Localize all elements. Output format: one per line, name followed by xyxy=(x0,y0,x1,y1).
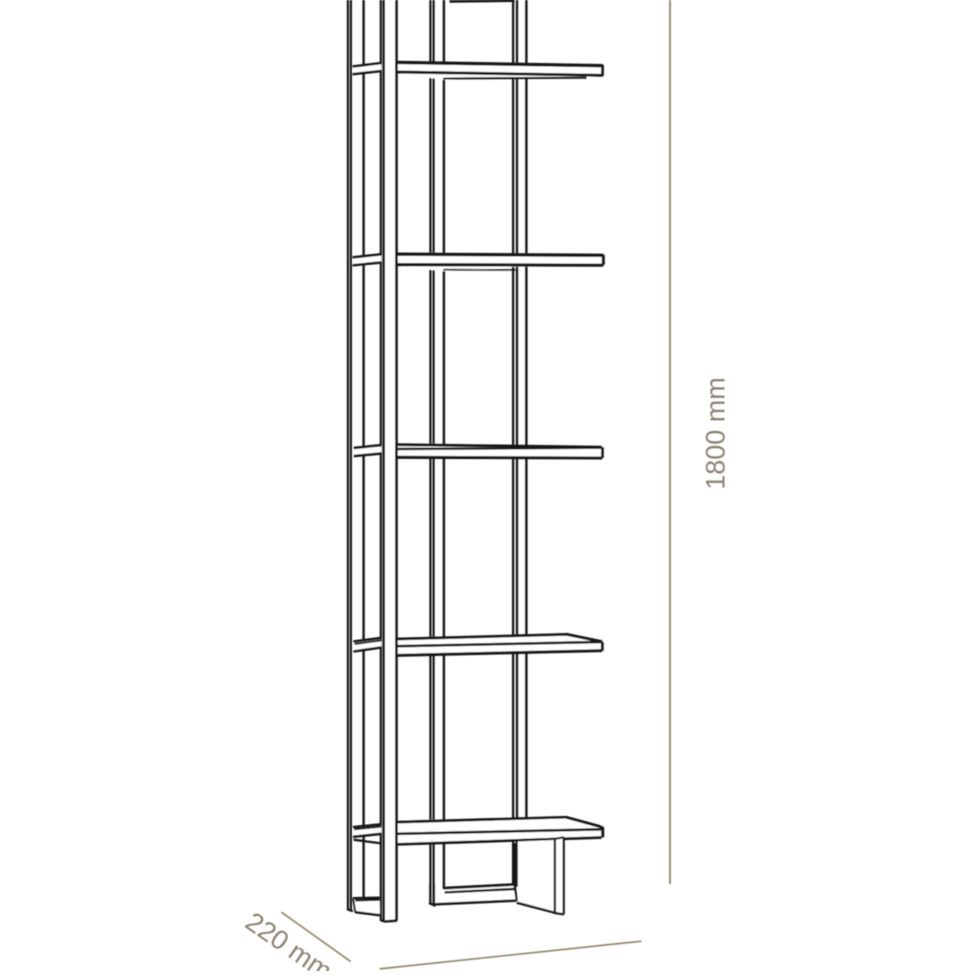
svg-text:1800 mm: 1800 mm xyxy=(701,377,731,490)
